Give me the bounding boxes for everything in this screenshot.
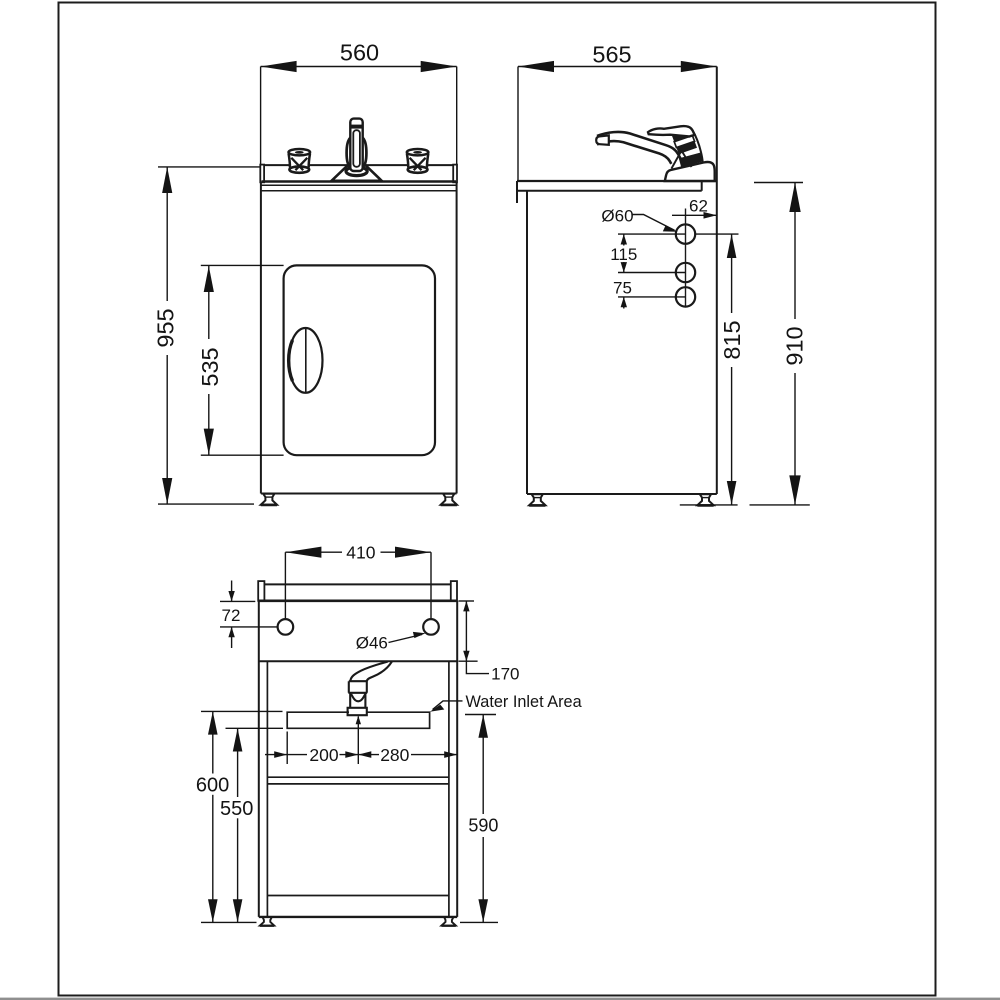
svg-text:910: 910 bbox=[782, 326, 808, 365]
svg-text:115: 115 bbox=[610, 245, 637, 264]
svg-text:200: 200 bbox=[309, 745, 338, 765]
svg-text:410: 410 bbox=[346, 542, 375, 562]
svg-text:170: 170 bbox=[491, 665, 519, 684]
svg-text:550: 550 bbox=[220, 798, 253, 820]
svg-text:62: 62 bbox=[689, 197, 708, 216]
svg-text:Ø46: Ø46 bbox=[356, 634, 388, 653]
svg-text:72: 72 bbox=[222, 606, 241, 625]
svg-text:590: 590 bbox=[468, 816, 498, 836]
svg-text:75: 75 bbox=[613, 278, 632, 297]
svg-text:955: 955 bbox=[153, 308, 179, 347]
svg-text:Ø60: Ø60 bbox=[601, 207, 633, 226]
svg-text:565: 565 bbox=[592, 42, 631, 68]
svg-text:560: 560 bbox=[340, 40, 379, 66]
svg-text:535: 535 bbox=[197, 347, 223, 386]
svg-text:600: 600 bbox=[196, 774, 229, 796]
svg-text:815: 815 bbox=[719, 320, 745, 359]
svg-text:280: 280 bbox=[380, 745, 409, 765]
svg-text:Water Inlet Area: Water Inlet Area bbox=[466, 693, 583, 711]
